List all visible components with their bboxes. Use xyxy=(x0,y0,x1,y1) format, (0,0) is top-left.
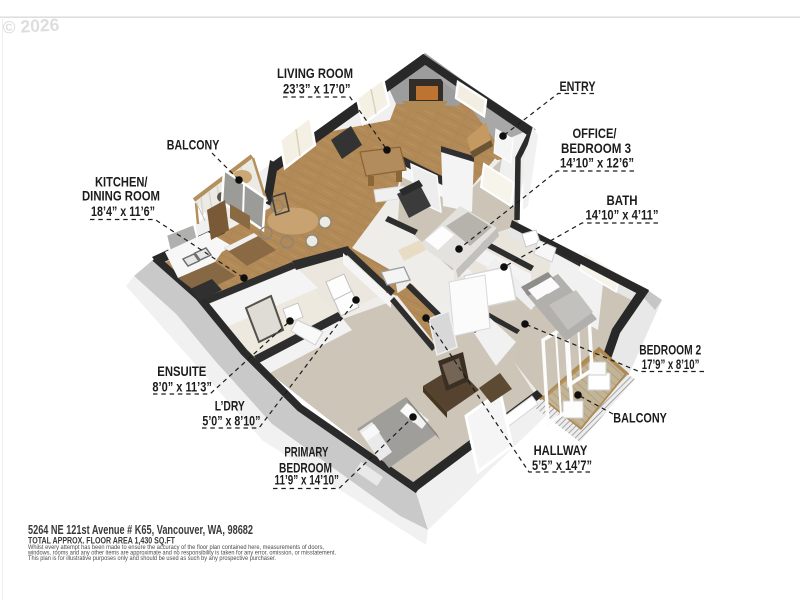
svg-text:14’10” x 12’6”: 14’10” x 12’6” xyxy=(560,155,634,171)
svg-text:5’0” x 8’10”: 5’0” x 8’10” xyxy=(202,412,260,428)
svg-text:11’9” x 14’10”: 11’9” x 14’10” xyxy=(275,472,340,488)
svg-text:8’0” x 11’3”: 8’0” x 11’3” xyxy=(152,379,212,395)
svg-text:BEDROOM 2: BEDROOM 2 xyxy=(639,341,701,357)
svg-text:L’DRY: L’DRY xyxy=(215,397,245,413)
svg-text:PRIMARY: PRIMARY xyxy=(284,444,328,460)
svg-text:LIVING ROOM: LIVING ROOM xyxy=(277,65,353,81)
svg-text:5’5” x 14’7”: 5’5” x 14’7” xyxy=(532,457,592,473)
svg-text:ENTRY: ENTRY xyxy=(560,78,597,94)
svg-text:BALCONY: BALCONY xyxy=(613,410,667,426)
svg-text:14’10” x 4’11”: 14’10” x 4’11” xyxy=(586,207,659,223)
svg-text:23’3” x 17’0”: 23’3” x 17’0” xyxy=(283,81,351,97)
svg-text:DINING ROOM: DINING ROOM xyxy=(82,187,160,203)
svg-text:OFFICE/: OFFICE/ xyxy=(573,125,617,141)
svg-text:BALCONY: BALCONY xyxy=(167,137,220,153)
svg-text:© 2026: © 2026 xyxy=(2,15,60,38)
svg-text:17’9” x 8’10”: 17’9” x 8’10” xyxy=(642,356,700,372)
svg-text:HALLWAY: HALLWAY xyxy=(534,442,588,458)
svg-text:This plan is for illustrative: This plan is for illustrative purposes o… xyxy=(28,555,276,562)
svg-text:ENSUITE: ENSUITE xyxy=(157,363,206,379)
svg-text:18’4” x 11’6”: 18’4” x 11’6” xyxy=(91,203,155,219)
